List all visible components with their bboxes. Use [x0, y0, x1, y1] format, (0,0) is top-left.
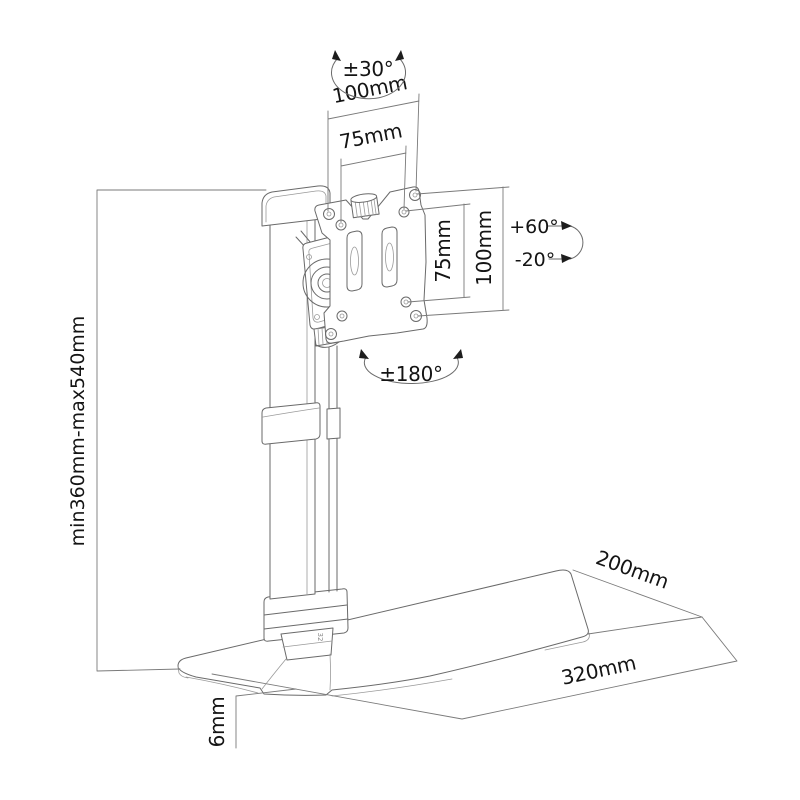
- tilt-arc: [570, 226, 583, 259]
- swivel-arrow-right-icon: [395, 50, 404, 61]
- diagram-canvas: 200mm 320mm 6mm 32: [0, 0, 800, 800]
- rotation-arrow-left-icon: [359, 349, 369, 359]
- thumbscrew-knob: [350, 192, 379, 217]
- rotation-label: ±180°: [379, 362, 442, 386]
- height-dimension: min360mm-max540mm: [67, 190, 266, 671]
- base-depth-label: 200mm: [593, 545, 672, 593]
- base-plate: [178, 570, 589, 696]
- monitor-stand-diagram: 200mm 320mm 6mm 32: [0, 0, 800, 800]
- pole-side-rail: [329, 346, 337, 592]
- tilt-annotation: +60° -20°: [509, 216, 583, 271]
- tilt-down-label: -20°: [515, 249, 556, 271]
- vesa-inner-width-label: 75mm: [337, 118, 404, 154]
- rotation-annotation: ±180°: [359, 349, 463, 386]
- base-top-surface: [178, 570, 588, 695]
- base-width-label: 320mm: [559, 651, 638, 690]
- tilt-arrow-up-icon: [561, 221, 572, 230]
- base-thickness-label: 6mm: [205, 697, 229, 748]
- swivel-angle-label: ±30°: [342, 57, 393, 81]
- vesa-inner-height-label: 75mm: [431, 219, 455, 282]
- foot-marking-label: 32: [316, 633, 324, 642]
- swivel-arrow-left-icon: [332, 50, 341, 61]
- vesa-outer-height-label: 100mm: [472, 210, 496, 286]
- height-range-label: min360mm-max540mm: [67, 316, 89, 547]
- base-depth-dimension: 200mm: [573, 545, 702, 634]
- tilt-arrow-down-icon: [561, 254, 572, 263]
- base-thickness-dimension: 6mm: [205, 689, 296, 748]
- rotation-arrow-right-icon: [453, 349, 463, 359]
- tilt-up-label: +60°: [509, 216, 559, 238]
- side-rail-clip: [327, 408, 340, 439]
